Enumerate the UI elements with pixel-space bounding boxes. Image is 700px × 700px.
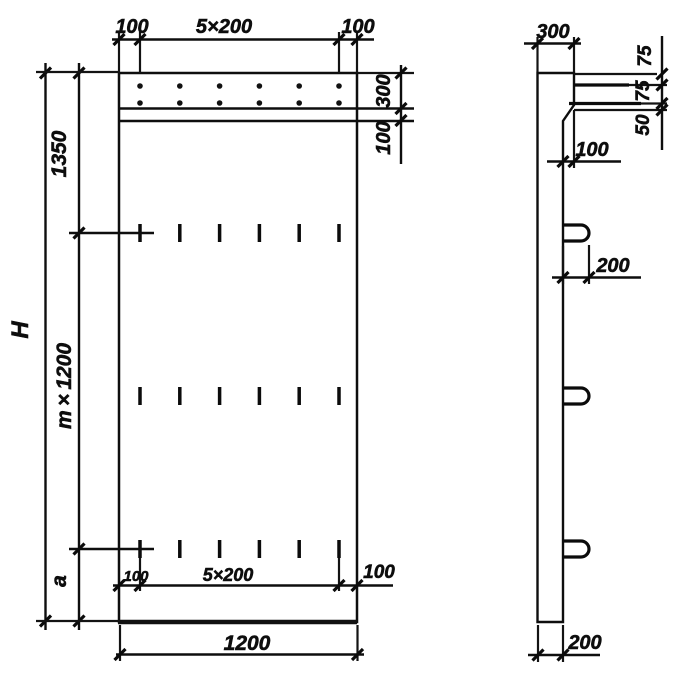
svg-text:a: a [48,575,71,587]
svg-text:5×200: 5×200 [203,565,254,585]
svg-text:1200: 1200 [224,632,271,655]
svg-text:100: 100 [575,139,608,161]
svg-text:m × 1200: m × 1200 [53,343,76,429]
svg-text:100: 100 [341,16,374,38]
svg-text:100: 100 [115,16,148,38]
svg-text:100: 100 [373,121,395,154]
svg-text:75: 75 [633,80,654,102]
svg-text:100: 100 [123,568,149,585]
svg-text:5×200: 5×200 [196,16,252,38]
svg-text:200: 200 [595,255,629,277]
svg-text:50: 50 [633,114,654,136]
svg-text:200: 200 [567,632,601,654]
svg-text:H: H [7,321,34,339]
svg-text:75: 75 [635,45,656,67]
svg-text:100: 100 [363,562,395,583]
svg-text:300: 300 [373,74,395,107]
svg-text:1350: 1350 [48,130,71,177]
svg-text:300: 300 [536,21,569,43]
